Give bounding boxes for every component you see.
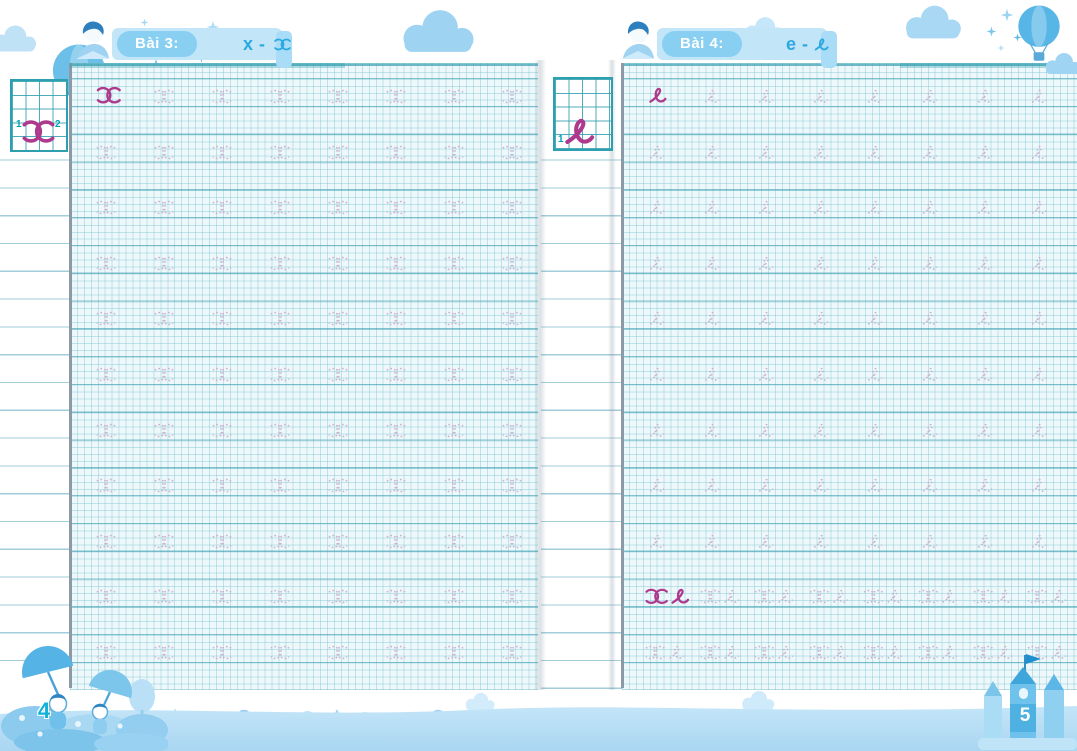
left-example-box: 1 2 [10,79,68,152]
practice-glyph-x-dotted [382,588,410,605]
practice-glyph-x-dotted [266,366,294,383]
practice-glyph-e-dotted [704,199,721,216]
practice-glyph-e-dotted [813,310,830,327]
practice-glyph-x-dotted [382,644,410,661]
practice-glyph-x-dotted [440,588,468,605]
practice-glyph-e-dotted [1031,199,1048,216]
practice-glyph-e-dotted [977,366,994,383]
practice-glyph-x-dotted [498,366,526,383]
stroke-number: 1 [16,119,22,130]
practice-glyph-xe-dotted [805,588,851,605]
practice-glyph-x-dotted [150,88,178,105]
practice-glyph-e-dotted [1031,310,1048,327]
practice-glyph-x-dotted [266,477,294,494]
practice-glyph-e-dotted [704,310,721,327]
left-lesson-letters: x - [243,34,294,55]
castle-illustration [978,648,1077,751]
practice-glyph-x-dotted [324,144,352,161]
practice-glyph-x-dotted [150,144,178,161]
reading-kid-icon [70,18,116,62]
practice-glyph-xe-solid [641,587,692,606]
practice-glyph-e-dotted [867,88,884,105]
practice-glyph-e-dotted [922,477,939,494]
practice-glyph-xe-dotted [1023,588,1069,605]
practice-glyph-e-dotted [649,255,666,272]
practice-glyph-x-dotted [324,533,352,550]
practice-glyph-x-dotted [208,366,236,383]
practice-glyph-x-dotted [382,199,410,216]
practice-glyph-x-dotted [498,477,526,494]
practice-glyph-x-dotted [150,310,178,327]
cursive-e-glyph [814,37,830,52]
practice-glyph-xe-dotted [696,588,742,605]
practice-glyph-x-dotted [266,422,294,439]
practice-glyph-x-dotted [498,310,526,327]
practice-glyph-e-dotted [649,422,666,439]
practice-glyph-e-dotted [867,477,884,494]
practice-glyph-e-dotted [704,477,721,494]
practice-glyph-x-dotted [324,588,352,605]
practice-glyph-x-dotted [324,199,352,216]
cloud-icon [1042,52,1077,76]
practice-glyph-xe-dotted [859,588,905,605]
practice-glyph-x-dotted [324,366,352,383]
practice-glyph-e-dotted [758,422,775,439]
practice-glyph-e-dotted [813,88,830,105]
practice-glyph-x-dotted [150,366,178,383]
practice-glyph-x-dotted [440,88,468,105]
practice-glyph-e-dotted [1031,255,1048,272]
kids-playing-illustration [0,626,168,751]
practice-glyph-x-dotted [150,588,178,605]
practice-glyph-e-dotted [649,310,666,327]
practice-glyph-x-dotted [440,366,468,383]
practice-glyph-x-dotted [382,422,410,439]
practice-glyph-e-dotted [922,255,939,272]
practice-glyph-x-dotted [382,310,410,327]
right-grid-margin-line [621,63,624,688]
letter-separator: - [802,34,808,55]
practice-glyph-x-dotted [440,255,468,272]
practice-glyph-x-dotted [440,310,468,327]
practice-glyph-e-dotted [922,199,939,216]
practice-glyph-x-dotted [92,199,120,216]
practice-glyph-x-dotted [440,144,468,161]
practice-glyph-e-dotted [704,144,721,161]
practice-glyph-e-dotted [649,477,666,494]
stroke-number: 2 [55,119,61,130]
practice-glyph-x-dotted [92,588,120,605]
practice-glyph-e-dotted [813,477,830,494]
practice-glyph-e-dotted [922,88,939,105]
practice-glyph-x-dotted [498,255,526,272]
practice-glyph-x-dotted [324,255,352,272]
practice-glyph-x-dotted [92,533,120,550]
practice-glyph-x-dotted [498,88,526,105]
practice-glyph-e-dotted [758,144,775,161]
practice-glyph-e-dotted [867,310,884,327]
practice-glyph-e-dotted [649,533,666,550]
practice-glyph-e-dotted [977,199,994,216]
practice-glyph-e-dotted [704,533,721,550]
practice-glyph-x-dotted [324,310,352,327]
stroke-number: 1 [558,134,564,145]
practice-glyph-e-dotted [922,533,939,550]
page-gutter-shadow [608,60,616,690]
practice-glyph-x-dotted [382,533,410,550]
practice-glyph-e-solid [649,86,668,105]
practice-glyph-e-dotted [758,477,775,494]
practice-glyph-e-dotted [977,88,994,105]
practice-glyph-e-dotted [922,422,939,439]
left-grid-margin-line [69,63,72,688]
cloud-icon [0,26,36,52]
practice-glyph-e-dotted [649,366,666,383]
practice-glyph-x-dotted [92,255,120,272]
practice-glyph-x-dotted [498,144,526,161]
practice-glyph-e-dotted [813,366,830,383]
practice-glyph-e-dotted [1031,144,1048,161]
example-cursive-e [565,116,596,147]
practice-glyph-e-dotted [758,88,775,105]
practice-glyph-e-dotted [977,144,994,161]
practice-glyph-e-dotted [867,366,884,383]
practice-glyph-e-dotted [758,199,775,216]
practice-glyph-x-dotted [92,422,120,439]
practice-glyph-e-dotted [813,199,830,216]
practice-glyph-xe-dotted [641,644,687,661]
practice-glyph-x-dotted [208,644,236,661]
left-margin-ruled-lines [0,152,70,662]
practice-glyph-e-dotted [1031,533,1048,550]
practice-glyph-x-dotted [92,144,120,161]
practice-glyph-e-dotted [867,533,884,550]
practice-glyph-e-dotted [704,422,721,439]
practice-glyph-xe-dotted [859,644,905,661]
practice-glyph-e-dotted [977,422,994,439]
practice-glyph-e-dotted [1031,422,1048,439]
practice-glyph-e-dotted [977,533,994,550]
practice-glyph-x-dotted [498,199,526,216]
page-gutter-shadow [534,60,546,690]
practice-glyph-e-dotted [758,255,775,272]
practice-glyph-xe-dotted [914,588,960,605]
practice-glyph-x-dotted [266,88,294,105]
practice-glyph-x-dotted [382,477,410,494]
practice-glyph-x-dotted [440,199,468,216]
practice-glyph-e-dotted [1031,88,1048,105]
practice-glyph-x-dotted [440,477,468,494]
practice-glyph-x-dotted [92,366,120,383]
practice-glyph-x-dotted [150,533,178,550]
practice-glyph-x-dotted [324,422,352,439]
practice-glyph-x-dotted [208,88,236,105]
flag-icon [1026,654,1041,664]
practice-glyph-x-dotted [150,422,178,439]
practice-glyph-e-dotted [922,310,939,327]
practice-glyph-e-dotted [1031,366,1048,383]
practice-glyph-x-dotted [266,588,294,605]
practice-glyph-xe-dotted [805,644,851,661]
practice-glyph-x-dotted [498,644,526,661]
practice-glyph-x-dotted [440,533,468,550]
practice-glyph-x-dotted [92,310,120,327]
practice-glyph-x-dotted [266,199,294,216]
practice-glyph-e-dotted [813,144,830,161]
practice-glyph-e-dotted [977,310,994,327]
practice-glyph-e-dotted [867,422,884,439]
practice-glyph-x-dotted [150,477,178,494]
cloud-icon [404,10,474,52]
practice-glyph-x-dotted [150,255,178,272]
page-number-right: 5 [1013,705,1037,727]
practice-glyph-x-dotted [266,255,294,272]
letter-separator: - [259,34,265,55]
practice-glyph-x-dotted [208,310,236,327]
practice-glyph-x-dotted [382,144,410,161]
practice-glyph-xe-dotted [696,644,742,661]
practice-glyph-x-dotted [382,366,410,383]
reading-kid-icon [615,18,661,62]
practice-glyph-e-dotted [867,255,884,272]
practice-glyph-x-dotted [208,533,236,550]
practice-glyph-e-dotted [813,533,830,550]
practice-glyph-x-dotted [324,88,352,105]
practice-glyph-x-dotted [92,477,120,494]
practice-glyph-xe-dotted [750,644,796,661]
practice-glyph-e-dotted [758,366,775,383]
practice-glyph-x-dotted [440,422,468,439]
page-number-left: 4 [30,698,58,724]
practice-glyph-xe-dotted [914,644,960,661]
practice-glyph-e-dotted [813,422,830,439]
practice-glyph-x-dotted [150,199,178,216]
practice-glyph-x-dotted [498,533,526,550]
practice-glyph-e-dotted [704,366,721,383]
practice-glyph-e-dotted [649,144,666,161]
practice-glyph-e-dotted [758,533,775,550]
practice-glyph-e-dotted [922,144,939,161]
cursive-x-glyph [271,37,294,52]
practice-glyph-x-dotted [208,199,236,216]
practice-glyph-e-dotted [867,199,884,216]
practice-glyph-x-dotted [208,477,236,494]
practice-glyph-e-dotted [649,199,666,216]
practice-glyph-e-dotted [704,255,721,272]
right-example-box: 1 [553,77,613,151]
right-lesson-label: Bài 4: [662,31,742,57]
practice-glyph-xe-dotted [750,588,796,605]
practice-glyph-e-dotted [758,310,775,327]
practice-glyph-e-dotted [704,88,721,105]
practice-glyph-x-dotted [382,255,410,272]
practice-glyph-x-dotted [382,88,410,105]
practice-glyph-x-dotted [498,422,526,439]
practice-glyph-x-dotted [324,477,352,494]
practice-glyph-x-dotted [266,144,294,161]
practice-glyph-x-dotted [266,644,294,661]
practice-glyph-x-dotted [208,588,236,605]
workbook-spread: Bài 3: x - Bài 4: e - 1 2 1 [0,0,1077,751]
practice-glyph-e-dotted [977,255,994,272]
practice-glyph-x-dotted [208,144,236,161]
right-lesson-letters: e - [786,34,830,55]
cloud-icon [906,6,961,39]
print-letter-e: e [786,34,796,55]
grid-top-strip [70,63,345,68]
practice-glyph-x-dotted [498,588,526,605]
practice-glyph-x-dotted [208,255,236,272]
practice-glyph-xe-dotted [969,588,1015,605]
practice-glyph-x-dotted [208,422,236,439]
practice-glyph-e-dotted [867,144,884,161]
left-lesson-label: Bài 3: [117,31,197,57]
practice-glyph-x-dotted [440,644,468,661]
practice-glyph-e-dotted [977,477,994,494]
practice-glyph-e-dotted [1031,477,1048,494]
practice-glyph-e-dotted [922,366,939,383]
practice-glyph-x-dotted [324,644,352,661]
practice-glyph-e-dotted [813,255,830,272]
practice-glyph-x-dotted [266,533,294,550]
practice-glyph-x-solid [92,85,126,105]
print-letter-x: x [243,34,253,55]
practice-glyph-x-dotted [266,310,294,327]
